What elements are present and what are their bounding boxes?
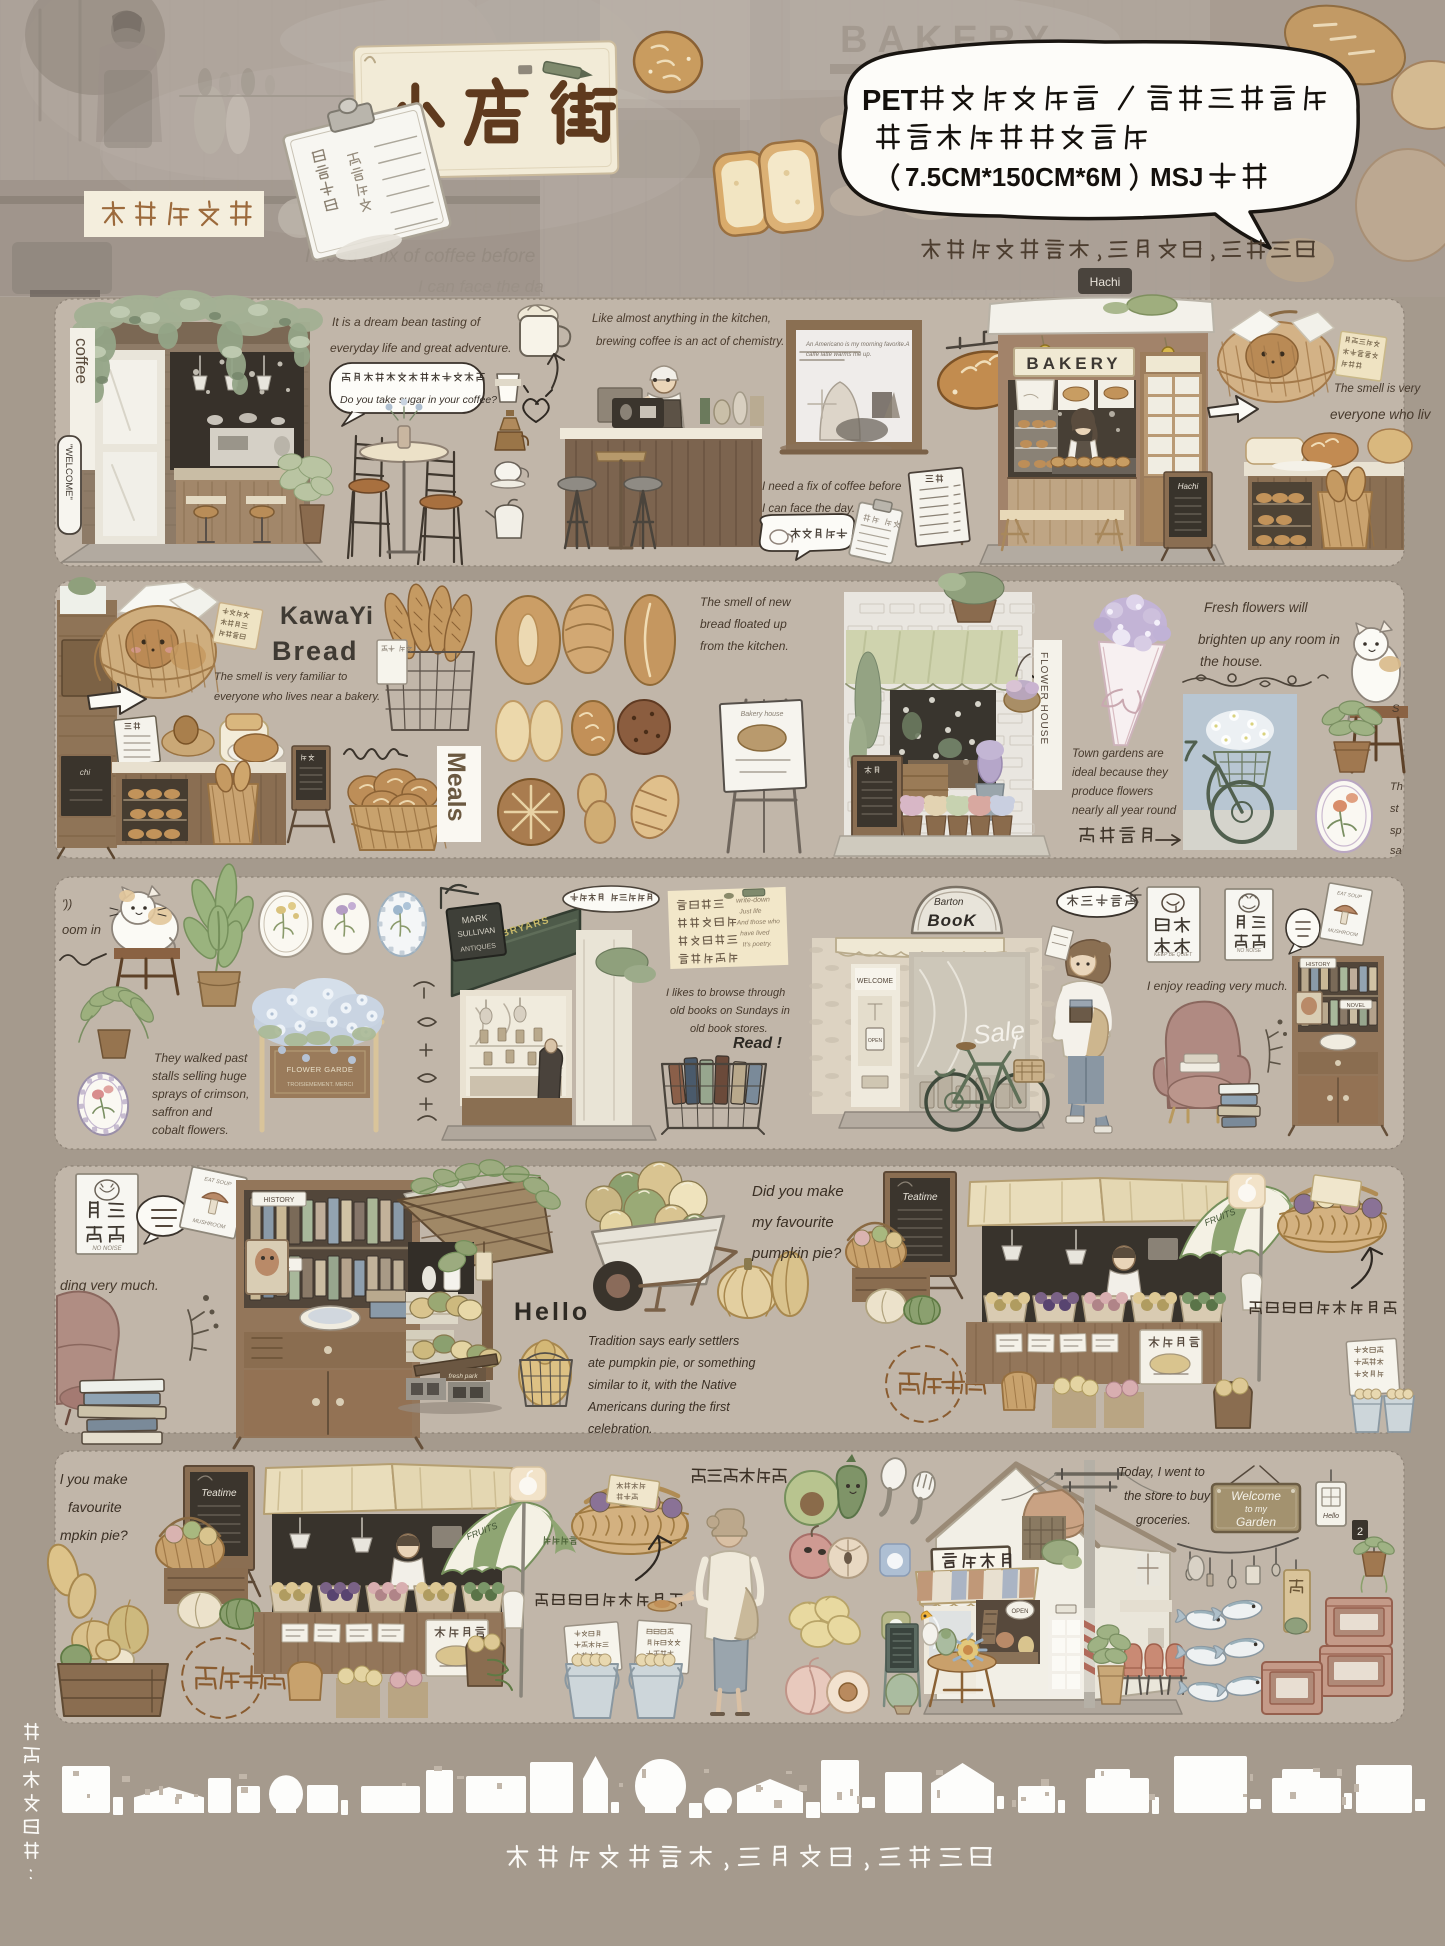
svg-text:I enjoy reading very much.: I enjoy reading very much. xyxy=(1147,979,1288,993)
svg-text:NO NOISE: NO NOISE xyxy=(1237,948,1262,954)
svg-text:similar to it, with the Native: similar to it, with the Native xyxy=(588,1378,737,1392)
svg-text:Did you make: Did you make xyxy=(752,1183,844,1200)
svg-text:Fresh flowers will: Fresh flowers will xyxy=(1204,600,1309,615)
svg-text:NO NOISE: NO NOISE xyxy=(92,1246,122,1252)
svg-text:Americans during the first: Americans during the first xyxy=(587,1400,730,1414)
svg-text:7.5CM*150CM*6M: 7.5CM*150CM*6M xyxy=(905,162,1122,192)
svg-text:celebration.: celebration. xyxy=(588,1422,653,1436)
svg-text:produce flowers: produce flowers xyxy=(1071,786,1153,798)
svg-text:I likes to browse through: I likes to browse through xyxy=(666,987,785,999)
svg-text:pumpkin pie?: pumpkin pie? xyxy=(751,1245,842,1262)
svg-text:cobalt flowers.: cobalt flowers. xyxy=(152,1123,229,1137)
svg-text:They walked past: They walked past xyxy=(154,1051,248,1065)
svg-text:NOVEL: NOVEL xyxy=(1347,1003,1366,1009)
svg-text:I need a fix of coffee before: I need a fix of coffee before xyxy=(762,481,901,493)
svg-text:stalls selling huge: stalls selling huge xyxy=(152,1069,247,1083)
svg-text:2: 2 xyxy=(1357,1526,1363,1538)
svg-text:have lived: have lived xyxy=(740,930,770,938)
svg-text:sa: sa xyxy=(1390,845,1402,857)
svg-text:Like almost anything in the ki: Like almost anything in the kitchen, xyxy=(592,313,771,325)
svg-text:fresh park: fresh park xyxy=(449,1373,479,1380)
svg-text:ideal because they: ideal because they xyxy=(1072,767,1169,779)
svg-text:It is a dream bean tasting of: It is a dream bean tasting of xyxy=(332,315,482,329)
svg-text:to my: to my xyxy=(1245,1504,1268,1514)
svg-text:everyone who lives near a bake: everyone who lives near a bakery. xyxy=(214,691,380,703)
svg-text:Tradition says early settlers: Tradition says early settlers xyxy=(588,1334,739,1348)
svg-text:The smell is very familiar to: The smell is very familiar to xyxy=(214,671,347,683)
svg-text:MSJ: MSJ xyxy=(1150,162,1203,192)
svg-text:The smell of new: The smell of new xyxy=(700,595,792,609)
svg-text:Hello: Hello xyxy=(1323,1513,1339,1520)
svg-text:bread floated up: bread floated up xyxy=(700,617,787,631)
svg-text:Bread: Bread xyxy=(272,636,359,666)
svg-text:Meals: Meals xyxy=(442,752,470,821)
svg-text:saffron and: saffron and xyxy=(152,1105,212,1119)
svg-text:st: st xyxy=(1390,803,1400,815)
svg-text:the store to buy: the store to buy xyxy=(1124,1489,1211,1503)
svg-text:sp: sp xyxy=(1390,825,1402,837)
svg-text:BooK: BooK xyxy=(927,911,977,930)
svg-text:Welcome: Welcome xyxy=(1231,1489,1281,1503)
svg-text:Hello: Hello xyxy=(514,1298,590,1326)
svg-text:ate pumpkin pie, or something: ate pumpkin pie, or something xyxy=(588,1356,756,1370)
svg-text:TROISIEMEMENT. MERCI: TROISIEMEMENT. MERCI xyxy=(287,1082,353,1088)
svg-text:The smell is very: The smell is very xyxy=(1334,383,1422,395)
svg-text:HISTORY: HISTORY xyxy=(264,1197,295,1204)
svg-text:Just life: Just life xyxy=(738,908,762,916)
svg-text:Barton: Barton xyxy=(934,897,964,908)
svg-text:Read !: Read ! xyxy=(733,1035,783,1052)
svg-text:chi: chi xyxy=(80,768,90,777)
svg-text:from the kitchen.: from the kitchen. xyxy=(700,639,789,653)
svg-text:brighten up any room in: brighten up any room in xyxy=(1198,632,1340,647)
svg-text:KawaYi: KawaYi xyxy=(280,602,374,630)
svg-text:Hachi: Hachi xyxy=(1090,275,1121,289)
svg-text:old book stores.: old book stores. xyxy=(690,1023,768,1035)
svg-text:my favourite: my favourite xyxy=(752,1214,834,1231)
svg-text:WELCOME: WELCOME xyxy=(857,978,894,985)
svg-text:Today, I went to: Today, I went to xyxy=(1118,1465,1205,1479)
svg-text:the house.: the house. xyxy=(1200,654,1263,669)
svg-text:S: S xyxy=(1392,703,1400,715)
svg-text:Town gardens are: Town gardens are xyxy=(1072,748,1164,760)
svg-text:write-down: write-down xyxy=(736,896,770,904)
svg-text:coffee: coffee xyxy=(72,338,91,384)
svg-text:KEEP BE QUIET: KEEP BE QUIET xyxy=(1154,952,1193,958)
svg-text:mpkin pie?: mpkin pie? xyxy=(60,1527,128,1543)
svg-text:Hachi: Hachi xyxy=(1178,482,1199,491)
svg-text:BAKERY: BAKERY xyxy=(1026,354,1121,373)
svg-text:favourite: favourite xyxy=(68,1499,122,1515)
svg-text:Sale: Sale xyxy=(971,1015,1026,1050)
svg-text:It's poetry.: It's poetry. xyxy=(742,940,772,948)
svg-text:I can face the da: I can face the da xyxy=(418,277,544,296)
svg-text:oom in: oom in xyxy=(62,922,101,937)
svg-text:l you make: l you make xyxy=(60,1471,128,1487)
svg-text:HISTORY: HISTORY xyxy=(1306,962,1331,968)
svg-text:groceries.: groceries. xyxy=(1136,1513,1191,1527)
svg-text:OPEN: OPEN xyxy=(1011,1609,1028,1615)
svg-text:Th: Th xyxy=(1390,781,1403,793)
svg-text:Garden: Garden xyxy=(1236,1515,1276,1529)
svg-text:Teatime: Teatime xyxy=(902,1192,938,1203)
svg-text:Bakery house: Bakery house xyxy=(741,711,784,718)
svg-text:')): ')) xyxy=(62,897,72,911)
svg-text:An Americano is my morning fav: An Americano is my morning favorite.A xyxy=(805,342,909,348)
svg-text:brewing coffee is an act of ch: brewing coffee is an act of chemistry. xyxy=(596,336,784,348)
svg-text:caffe latte warms me up.: caffe latte warms me up. xyxy=(806,352,871,358)
svg-text:"WELCOME": "WELCOME" xyxy=(63,444,74,500)
svg-text:Teatime: Teatime xyxy=(201,1488,237,1499)
svg-text:nearly all year round: nearly all year round xyxy=(1072,805,1177,817)
svg-text:ding very much.: ding very much. xyxy=(60,1277,159,1293)
svg-text:everyday life and great advent: everyday life and great adventure. xyxy=(330,341,511,355)
svg-text:PET: PET xyxy=(862,85,919,117)
svg-text:old books on Sundays in: old books on Sundays in xyxy=(670,1005,790,1017)
svg-text:sprays of crimson,: sprays of crimson, xyxy=(152,1087,249,1101)
svg-text:FLOWER GARDE: FLOWER GARDE xyxy=(287,1065,354,1074)
svg-text:OPEN: OPEN xyxy=(868,1038,883,1044)
svg-text:everyone who liv: everyone who liv xyxy=(1330,407,1432,422)
